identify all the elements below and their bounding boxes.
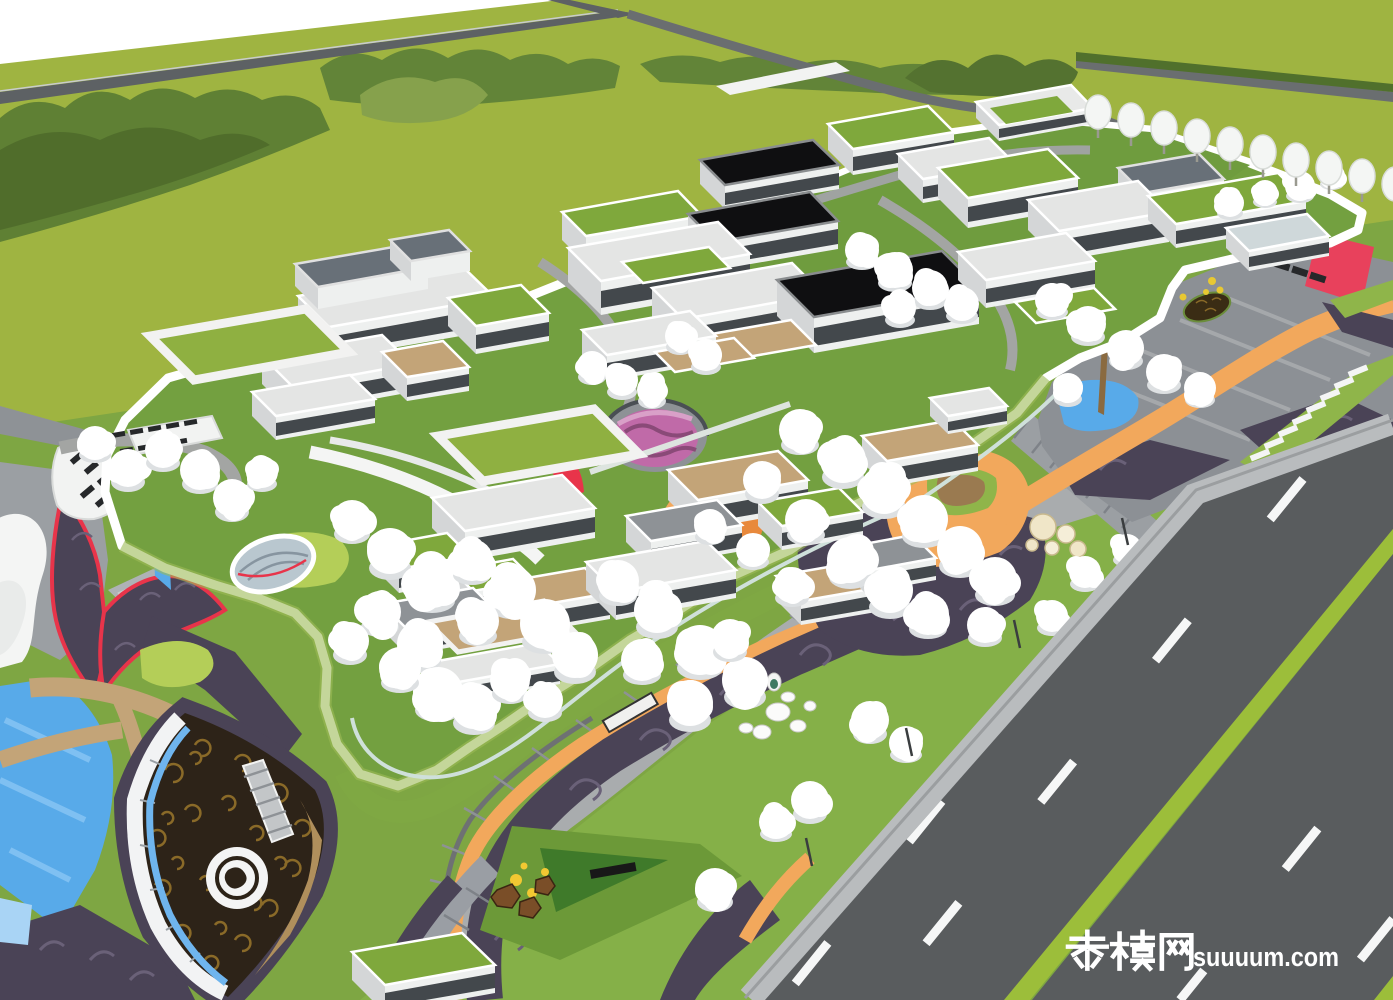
svg-text:suuuum.com: suuuum.com xyxy=(1193,942,1339,972)
